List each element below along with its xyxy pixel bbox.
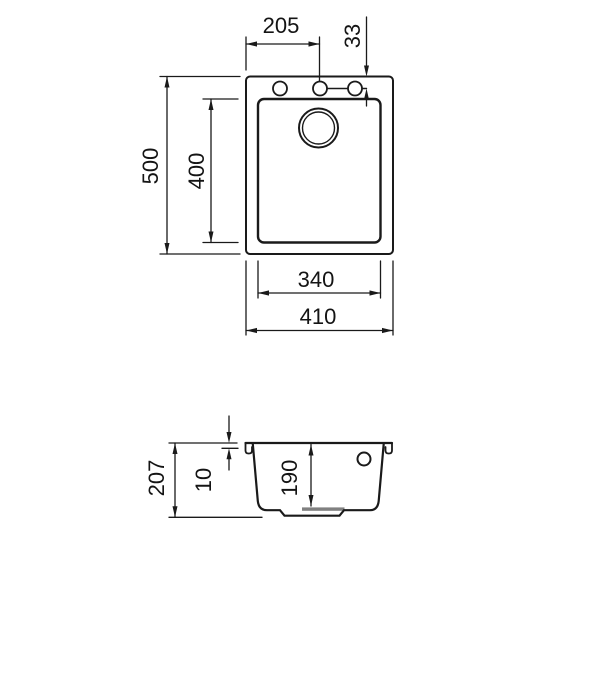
drain-hole-icon	[299, 109, 338, 148]
tap-hole-center-icon	[313, 82, 327, 96]
dim-label-overall-height: 207	[144, 446, 170, 510]
top-view-outline	[246, 77, 393, 255]
tap-hole-right-icon	[348, 82, 362, 96]
dim-label-tap-hole-edge-distance: 33	[340, 4, 366, 68]
dim-label-bowl-inner-depth: 190	[277, 446, 303, 510]
dim-label-bowl-depth-plan: 400	[184, 139, 210, 203]
dim-label-overall-depth: 500	[138, 134, 164, 198]
overflow-hole-icon	[358, 453, 371, 466]
sink-dimension-drawing	[0, 0, 600, 689]
section-view-outline	[246, 443, 393, 516]
dim-205	[246, 37, 320, 81]
dim-190	[309, 445, 314, 507]
dim-label-bowl-width: 340	[284, 267, 348, 293]
tap-hole-left-icon	[273, 82, 287, 96]
dim-label-overall-width: 410	[286, 304, 350, 330]
technical-drawing-sheet: 205 33 500 400 340 410 207 10 190	[0, 0, 600, 689]
dim-label-tap-hole-offset: 205	[249, 13, 313, 39]
dim-label-rim-thickness: 10	[191, 448, 217, 512]
drain-recess-shade	[302, 507, 345, 510]
